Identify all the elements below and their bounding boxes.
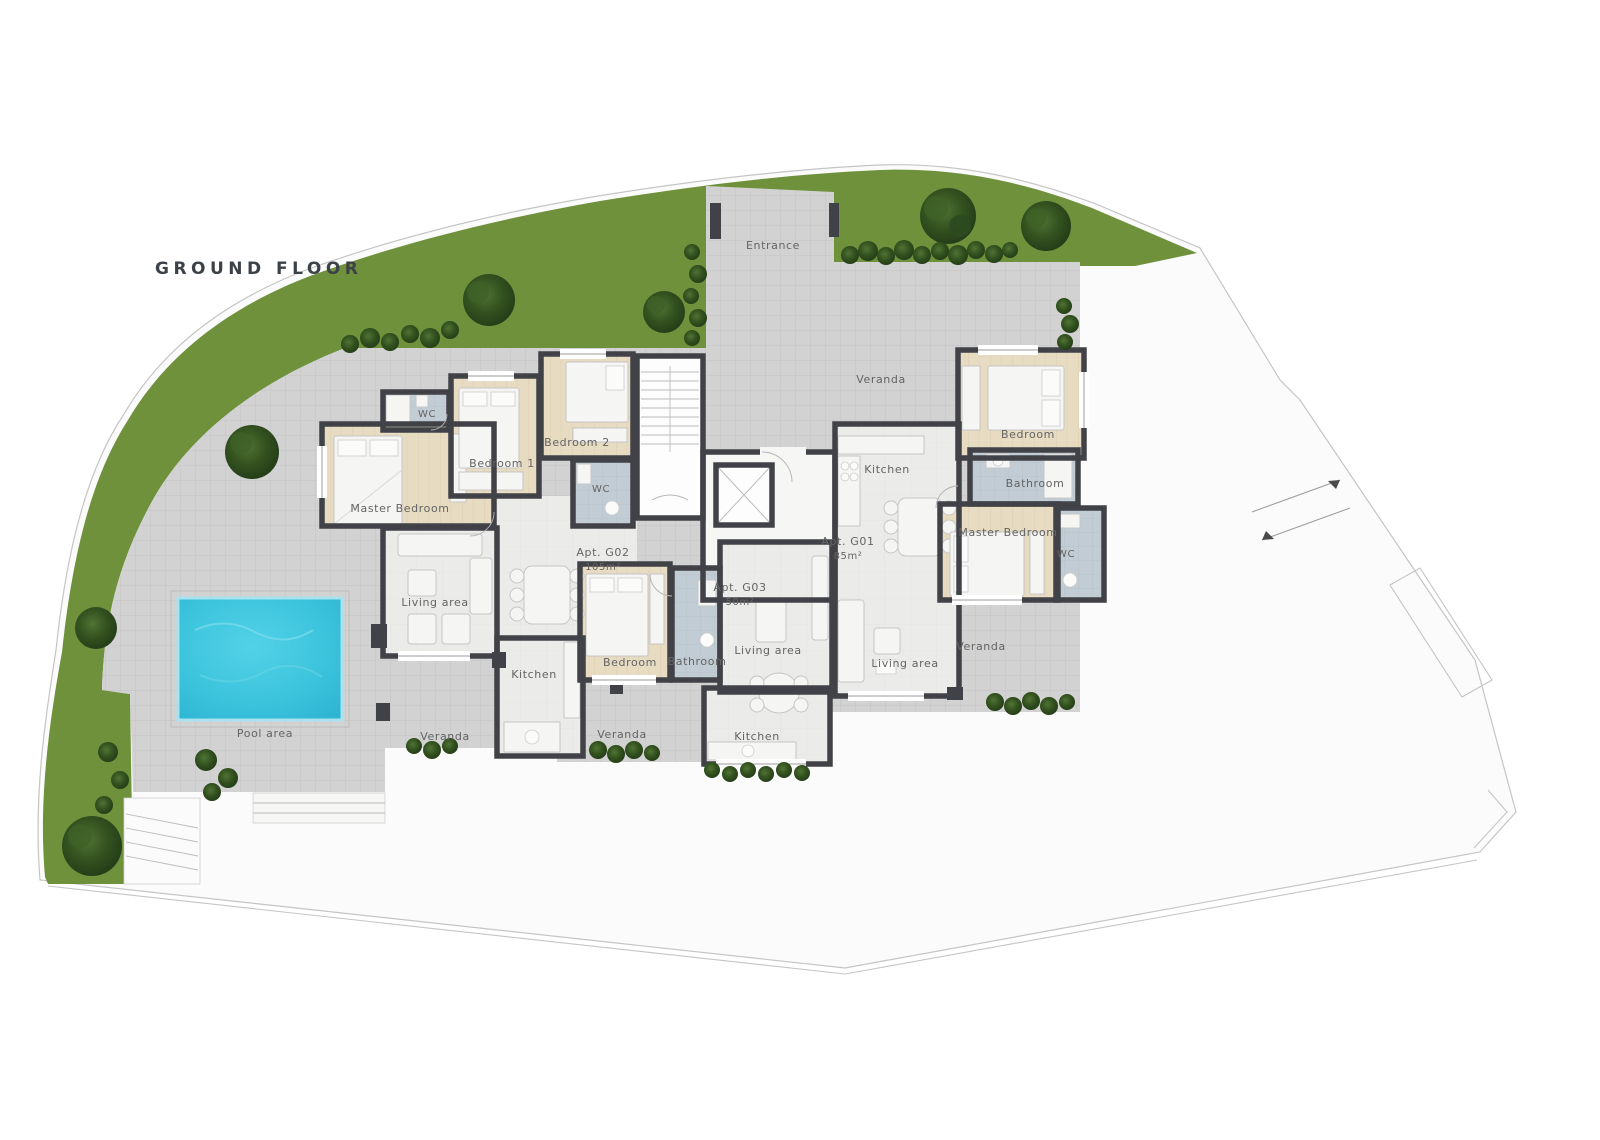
entrance-label: Entrance bbox=[746, 239, 800, 252]
window bbox=[560, 349, 606, 359]
g02-living-label: Living area bbox=[401, 596, 468, 609]
g02-bedroom2-label: Bedroom 2 bbox=[544, 436, 610, 449]
g01-apt-area: 85m² bbox=[834, 551, 863, 562]
tree bbox=[643, 291, 685, 333]
veranda-left-label: Veranda bbox=[420, 730, 470, 743]
tree bbox=[1021, 201, 1071, 251]
tree bbox=[920, 188, 976, 244]
g02-apt-area: 105m² bbox=[585, 562, 621, 573]
window bbox=[468, 371, 514, 381]
g03-apt-area: 50m² bbox=[726, 597, 755, 608]
veranda-right-label: Veranda bbox=[956, 640, 1006, 653]
window bbox=[592, 675, 656, 685]
g03-kitchen-label: Kitchen bbox=[734, 730, 780, 743]
tree bbox=[463, 274, 515, 326]
g01-bedroom-label: Bedroom bbox=[1001, 428, 1055, 441]
g01-master-label: Master Bedroom bbox=[958, 526, 1057, 539]
window bbox=[848, 691, 924, 701]
g02-wc1-label: WC bbox=[418, 409, 436, 420]
window bbox=[398, 651, 470, 661]
floor-plan-drawing: GROUND FLOOR Entrance Veranda WC Bedroom… bbox=[0, 0, 1600, 1140]
window bbox=[978, 345, 1038, 355]
g01-living-label: Living area bbox=[871, 657, 938, 670]
window bbox=[317, 446, 327, 498]
g03-bedroom-label: Bedroom bbox=[603, 656, 657, 669]
window bbox=[1079, 372, 1089, 428]
g03-apt-id: Apt. G03 bbox=[713, 581, 766, 594]
pool-water bbox=[178, 598, 342, 720]
tree bbox=[75, 607, 117, 649]
page-title: GROUND FLOOR bbox=[155, 259, 362, 279]
floor-plan-page: GROUND FLOOR Entrance Veranda WC Bedroom… bbox=[0, 0, 1600, 1140]
g02-apt-id: Apt. G02 bbox=[576, 546, 629, 559]
g02-master-label: Master Bedroom bbox=[350, 502, 449, 515]
g02-bedroom1-label: Bedroom 1 bbox=[469, 457, 535, 470]
g03-bathroom-label: Bathroom bbox=[668, 655, 727, 668]
g01-wc-label: WC bbox=[1057, 549, 1075, 560]
g02-kitchen-label: Kitchen bbox=[511, 668, 557, 681]
pool bbox=[171, 591, 349, 727]
pool-area-label: Pool area bbox=[237, 727, 293, 740]
tree bbox=[62, 816, 122, 876]
g01-bathroom-label: Bathroom bbox=[1006, 477, 1065, 490]
g01-kitchen-label: Kitchen bbox=[864, 463, 910, 476]
g03-living-label: Living area bbox=[734, 644, 801, 657]
veranda-top-label: Veranda bbox=[856, 373, 906, 386]
window bbox=[952, 595, 1022, 605]
g01-apt-id: Apt. G01 bbox=[821, 535, 874, 548]
veranda-center-label: Veranda bbox=[597, 728, 647, 741]
tree bbox=[225, 425, 279, 479]
g02-wc2-label: WC bbox=[592, 484, 610, 495]
